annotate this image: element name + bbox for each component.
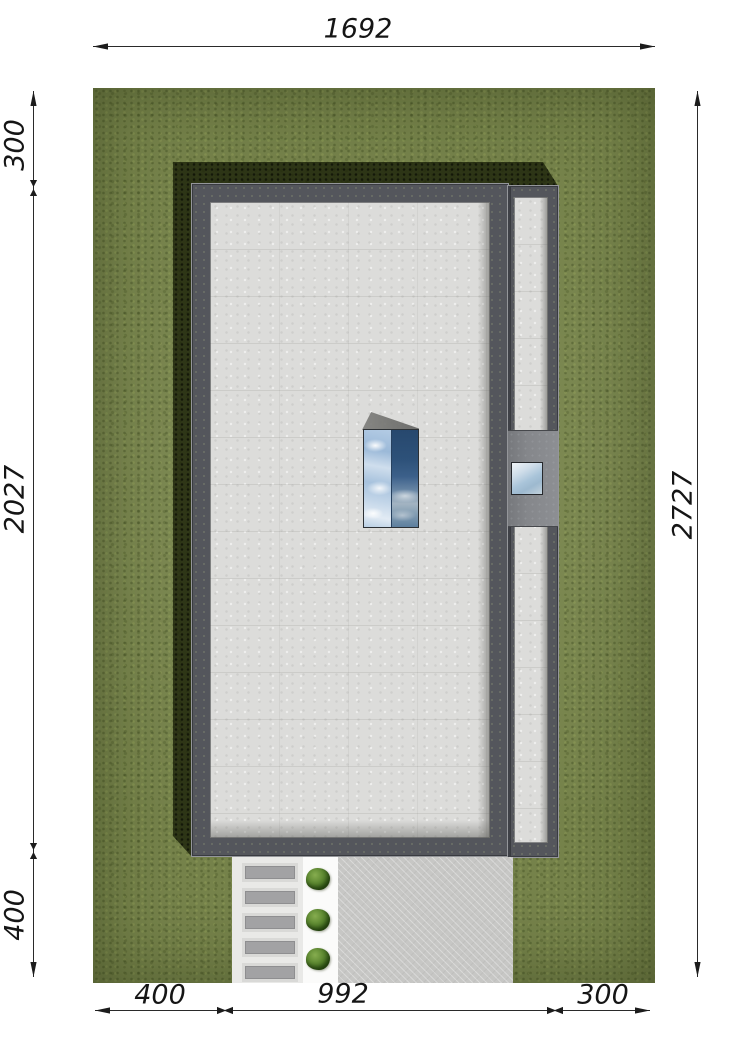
site-plan-canvas: 1692 300 2027 400 2727 400 992 300	[0, 0, 735, 1050]
dimension-value: 1692	[324, 16, 393, 43]
arrow-up-icon	[694, 91, 701, 106]
arrow-left-icon	[93, 43, 108, 50]
stepping-stone	[242, 913, 298, 932]
main-roof-membrane	[210, 202, 490, 838]
arrow-right-icon	[635, 1007, 650, 1014]
dimension-line	[93, 46, 655, 47]
dimension-value: 992	[317, 981, 369, 1008]
roof-skylight	[363, 429, 419, 528]
annex-window	[511, 462, 543, 495]
arrow-right-icon	[640, 43, 655, 50]
arrow-down-icon	[694, 962, 701, 977]
stepping-stone	[242, 938, 298, 957]
dimension-value: 400	[2, 889, 29, 941]
dimension-value: 2727	[670, 471, 697, 540]
arrow-down-icon	[30, 962, 37, 977]
bush-icon	[306, 868, 330, 890]
dimension-value: 300	[2, 119, 29, 171]
stepping-stone	[242, 963, 298, 982]
bush-icon	[306, 948, 330, 970]
main-roof-shading-bottom	[210, 820, 490, 838]
dimension-value: 400	[134, 982, 186, 1009]
driveway	[338, 857, 513, 983]
stepping-stone	[242, 863, 298, 882]
arrow-left-icon	[95, 1007, 110, 1014]
arrow-up-icon	[30, 91, 37, 106]
dimension-tick-icon	[547, 1006, 563, 1015]
stepping-stone	[242, 888, 298, 907]
dimension-tick-icon	[29, 180, 38, 196]
skylight-pane-light	[364, 430, 391, 527]
main-roof-shading-right	[478, 202, 490, 838]
dimension-tick-icon	[217, 1006, 233, 1015]
dimension-value: 2027	[2, 465, 29, 534]
dimension-value: 300	[577, 982, 629, 1009]
bush-icon	[306, 909, 330, 931]
dimension-tick-icon	[29, 843, 38, 859]
skylight-pane-dark	[391, 430, 418, 527]
